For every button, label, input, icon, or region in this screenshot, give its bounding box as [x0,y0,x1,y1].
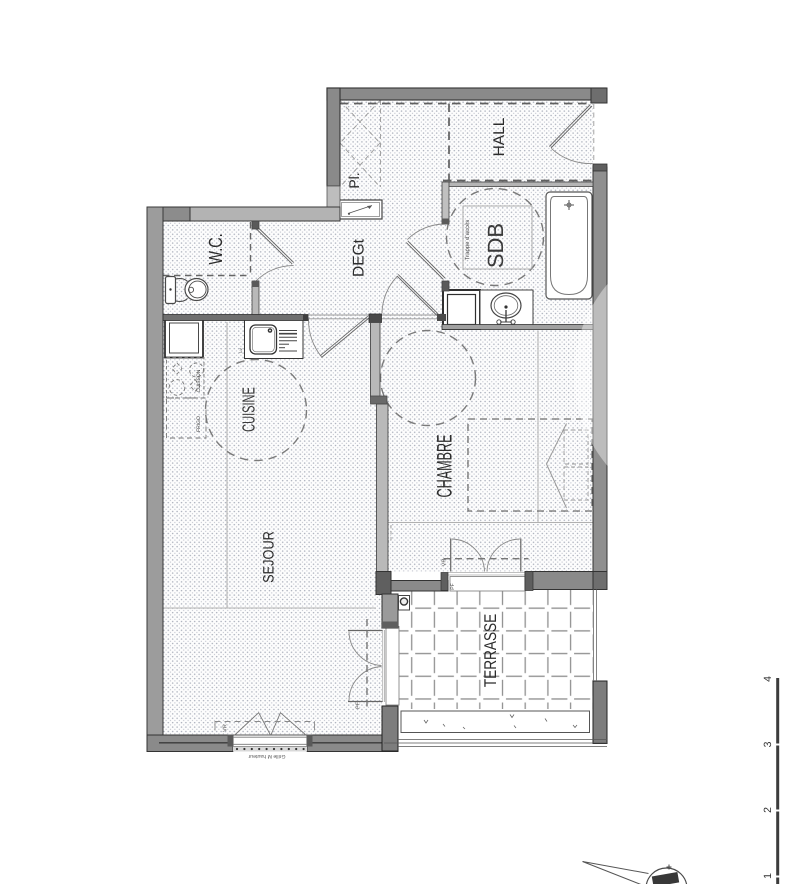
svg-text:CUISSON: CUISSON [196,369,202,392]
svg-text:W.C.: W.C. [206,233,227,264]
svg-text:Pl.: Pl. [346,172,362,188]
svg-text:1: 1 [762,873,774,879]
svg-text:CUISINE: CUISINE [239,387,259,432]
svg-text:VR: VR [442,559,448,567]
svg-text:PF: PF [450,583,456,589]
svg-text:Grille M hauteur: Grille M hauteur [248,753,285,759]
svg-text:FRIGO: FRIGO [196,416,202,432]
svg-text:SEJOUR: SEJOUR [261,531,278,583]
svg-text:CHAMBRE: CHAMBRE [434,434,457,497]
svg-text:DEGt: DEGt [351,238,368,277]
svg-text:Trappe d'accès: Trappe d'accès [464,220,471,261]
svg-text:4: 4 [762,676,774,682]
svg-text:2: 2 [762,807,774,813]
svg-text:VR: VR [223,724,229,732]
svg-text:3: 3 [762,741,774,747]
svg-text:SDB: SDB [483,223,508,268]
svg-text:Lv: Lv [238,347,243,353]
svg-text:TERRASSE: TERRASSE [481,614,500,687]
svg-text:HALL: HALL [491,117,508,156]
svg-text:PF: PF [356,701,362,709]
